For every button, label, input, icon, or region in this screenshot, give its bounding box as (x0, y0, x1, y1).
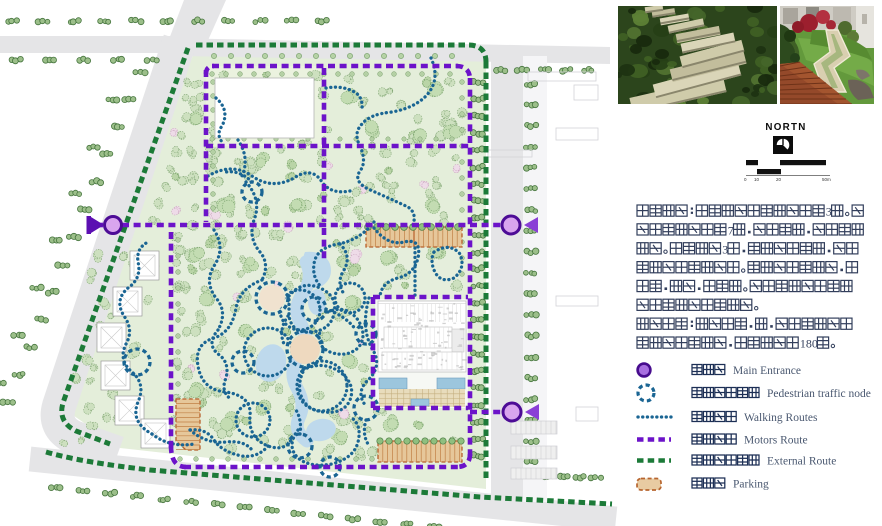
svg-text:3: 3 (826, 205, 832, 219)
svg-text:10: 10 (754, 177, 760, 182)
svg-text:7: 7 (728, 224, 734, 238)
svg-text:0: 0 (744, 177, 747, 182)
svg-text:Walking Routes: Walking Routes (744, 412, 818, 424)
svg-text:Motors Route: Motors Route (744, 435, 808, 447)
svg-text:50m: 50m (822, 177, 831, 182)
svg-text:Main Entrance: Main Entrance (733, 365, 801, 377)
svg-text:3: 3 (722, 242, 728, 256)
svg-text:20: 20 (776, 177, 782, 182)
svg-text:Pedestrian traffic node: Pedestrian traffic node (767, 388, 871, 400)
svg-text:180: 180 (800, 337, 818, 351)
svg-text:External Route: External Route (767, 456, 836, 468)
svg-text:Parking: Parking (733, 479, 769, 491)
svg-text:NORTN: NORTN (765, 122, 806, 133)
